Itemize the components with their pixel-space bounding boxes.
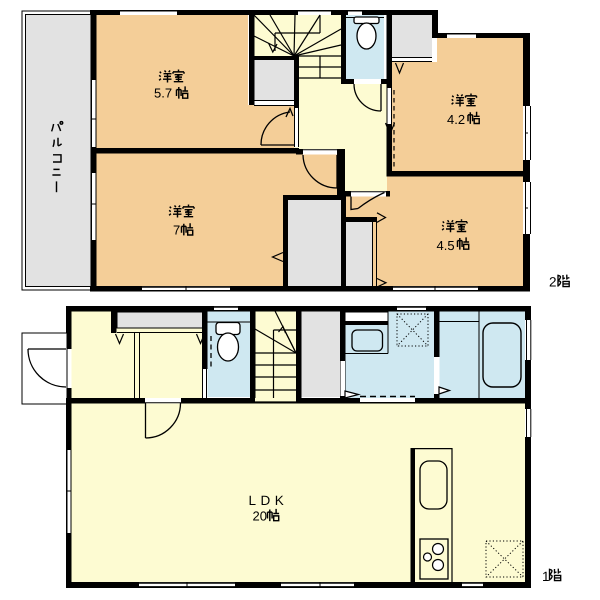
svg-text:4.2: 4.2 bbox=[447, 112, 465, 127]
svg-text:20: 20 bbox=[253, 509, 267, 524]
svg-text:2: 2 bbox=[549, 275, 557, 290]
svg-text:1: 1 bbox=[542, 569, 550, 584]
svg-text:7: 7 bbox=[173, 223, 180, 238]
svg-text:LDK: LDK bbox=[249, 493, 289, 508]
svg-text:4.5: 4.5 bbox=[437, 238, 455, 253]
svg-text:5.7: 5.7 bbox=[154, 86, 172, 101]
